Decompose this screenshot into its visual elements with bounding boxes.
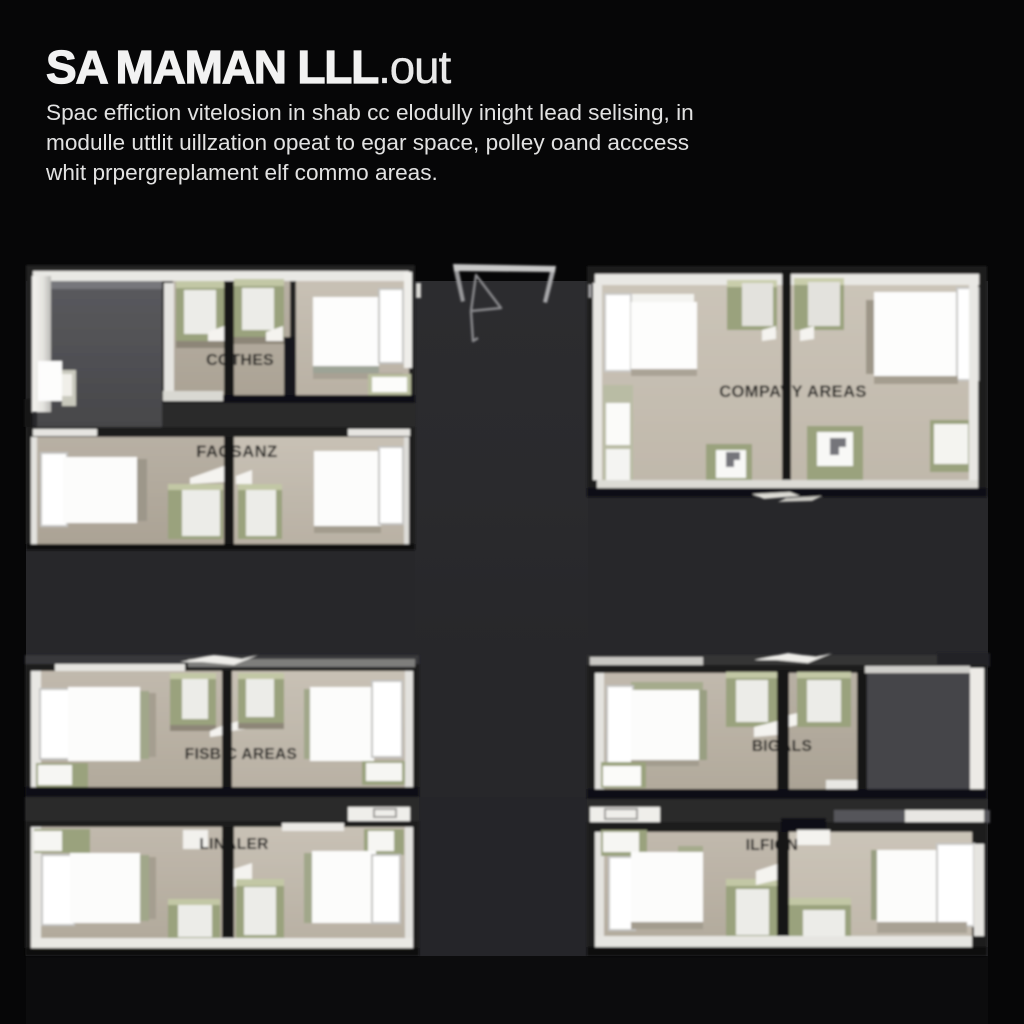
- svg-text:FISB C AREAS: FISB C AREAS: [185, 746, 297, 763]
- svg-text:Spac effiction vitelosion in s: Spac effiction vitelosion in shab cc elo…: [46, 100, 694, 125]
- svg-text:BIGALS: BIGALS: [752, 738, 812, 755]
- svg-text:LINALER: LINALER: [199, 836, 268, 853]
- svg-text:COMPAVY AREAS: COMPAVY AREAS: [719, 383, 867, 401]
- svg-text:ILFIGN: ILFIGN: [746, 837, 799, 854]
- svg-text:FACSANZ: FACSANZ: [196, 443, 277, 461]
- svg-text:SA MAMAN LLL.out: SA MAMAN LLL.out: [46, 41, 451, 93]
- svg-text:whit prpergreplament elf commo: whit prpergreplament elf commo areas.: [45, 160, 438, 185]
- svg-text:modulle uttlit uillzation opea: modulle uttlit uillzation opeat to egar …: [46, 130, 689, 155]
- svg-text:COTHES: COTHES: [206, 352, 274, 369]
